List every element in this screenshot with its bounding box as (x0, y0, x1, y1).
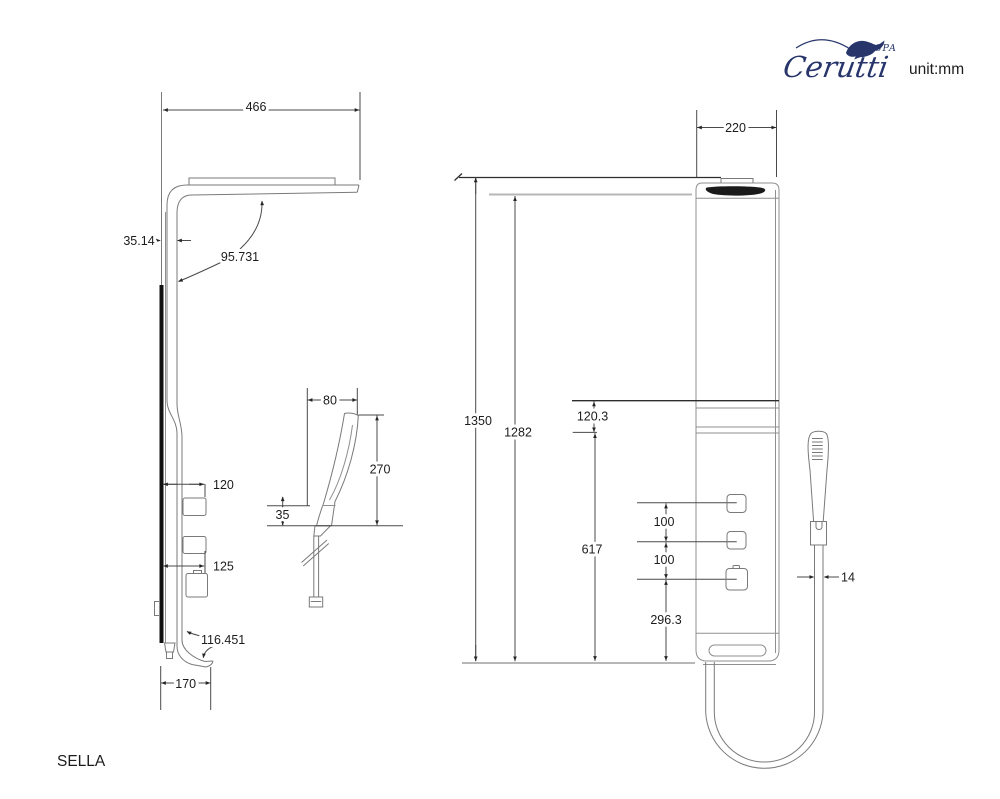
unit-label: unit:mm (909, 61, 964, 78)
dim-hand-height: 270 (370, 463, 391, 477)
hand-shower-detail: 80 270 35 (267, 388, 403, 607)
technical-drawing: Cerutti SPA unit:mm 466 (0, 0, 1000, 799)
front-panel-outline (696, 183, 779, 661)
dim-knob-gap1: 100 (654, 515, 675, 529)
side-knob-2 (183, 537, 206, 554)
logo-swoosh (796, 40, 850, 49)
hanging-handset-bracket (811, 522, 827, 546)
brand-name: Cerutti (781, 50, 891, 84)
dim-bracket-height: 35 (276, 508, 290, 522)
side-arm-bottom (192, 192, 357, 195)
dim-angle-leader-arm (240, 201, 262, 249)
dim-angle: 95.731 (221, 250, 259, 264)
dim-hose-diameter: 14 (841, 571, 855, 585)
dim-knob-gap2: 100 (654, 553, 675, 567)
brand-sub-label: SPA (875, 43, 897, 54)
hose-loop-outer (706, 545, 823, 768)
dim-thickness: 35.14 (123, 234, 154, 248)
model-label: SELLA (57, 753, 106, 770)
dim-total-height: 1350 (464, 414, 492, 428)
side-knob-1 (183, 498, 206, 516)
front-bottom-slot (709, 645, 766, 656)
side-outlet-nozzle (165, 643, 176, 659)
front-knob-1 (727, 495, 746, 513)
front-top-tab (721, 179, 753, 184)
dim-offset1: 120 (213, 478, 234, 492)
dim-bottom-section: 296.3 (650, 613, 681, 627)
hose-nut (309, 597, 322, 607)
hanging-handset-spray-hatches (812, 439, 823, 460)
dim-head-width: 80 (323, 394, 337, 408)
dim-width: 220 (725, 121, 746, 135)
handset-hose (314, 536, 319, 597)
side-wall-clip (155, 602, 160, 616)
dim-body-height: 1282 (504, 426, 532, 440)
dim-top-width: 466 (246, 100, 267, 114)
brand-logo: Cerutti SPA (781, 40, 897, 84)
handset-connector (314, 526, 331, 536)
side-head-plate (189, 178, 335, 185)
hose-loop-inner (714, 545, 814, 762)
side-foot-cap (206, 661, 213, 667)
side-arm-endcap (357, 185, 359, 192)
dim-control-section: 617 (582, 543, 603, 557)
hanging-handset-bracket-notch (816, 522, 822, 530)
dim-foot-curve: 116.451 (201, 633, 245, 647)
front-view: 14 220 1350 1282 120.3 617 100 (455, 110, 855, 768)
front-mid-band-lines (696, 408, 779, 433)
drawing-sheet: Cerutti SPA unit:mm 466 (0, 0, 1000, 799)
dim-offset2: 125 (213, 560, 234, 574)
dim-head-section: 120.3 (577, 410, 608, 424)
hose-break-marks (302, 540, 329, 566)
side-knob-3 (186, 574, 208, 598)
front-head-lens (706, 186, 765, 195)
dim-base-depth: 170 (175, 677, 196, 691)
front-knob-2 (727, 532, 746, 550)
hanging-handset-outline (808, 431, 828, 521)
dim-foot-leader-2 (203, 647, 213, 658)
